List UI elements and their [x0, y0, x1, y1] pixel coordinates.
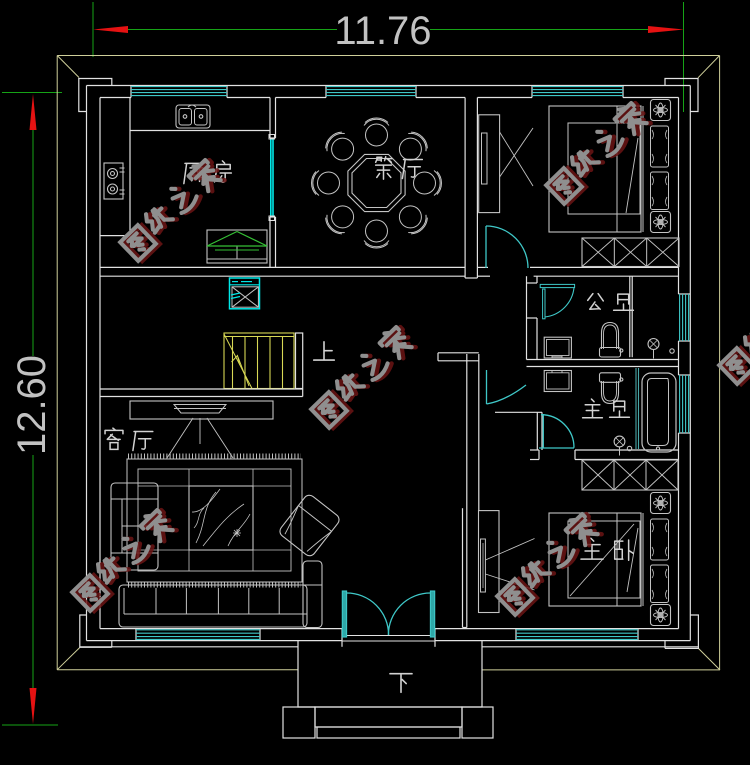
svg-text:12.60: 12.60 [10, 355, 54, 455]
svg-text:11.76: 11.76 [334, 9, 431, 53]
